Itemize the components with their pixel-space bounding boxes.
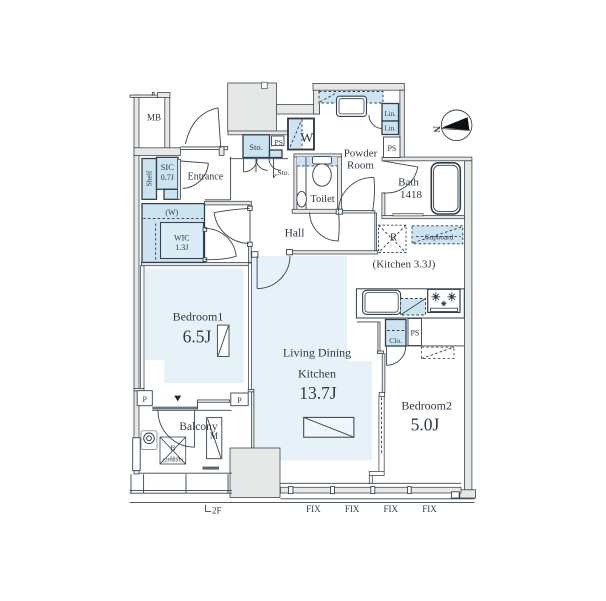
svg-text:FIX: FIX — [384, 504, 399, 514]
svg-text:(W): (W) — [165, 208, 178, 217]
svg-text:Lin.: Lin. — [384, 110, 396, 118]
svg-text:Sto.: Sto. — [278, 168, 290, 177]
svg-text:Bath: Bath — [398, 177, 419, 189]
svg-text:Entrance: Entrance — [188, 172, 224, 183]
svg-text:13.7J: 13.7J — [299, 383, 337, 403]
svg-text:Clo.: Clo. — [389, 336, 402, 345]
svg-text:Kitchen: Kitchen — [298, 367, 336, 381]
svg-text:B: B — [170, 444, 175, 453]
svg-text:PS: PS — [387, 144, 396, 153]
svg-text:N: N — [432, 126, 442, 133]
svg-text:M: M — [210, 431, 218, 441]
svg-text:Toilet: Toilet — [310, 194, 334, 205]
svg-text:PS: PS — [410, 329, 419, 338]
svg-text:MB: MB — [147, 113, 161, 123]
svg-text:6.5J: 6.5J — [183, 327, 212, 347]
svg-text:FIX: FIX — [422, 504, 437, 514]
svg-text:WIC: WIC — [174, 234, 190, 243]
svg-text:Living Dining: Living Dining — [283, 345, 351, 359]
svg-text:SIC: SIC — [161, 162, 175, 172]
svg-text:Powder: Powder — [344, 148, 378, 160]
svg-text:Lin.: Lin. — [384, 125, 396, 133]
svg-text:FIX: FIX — [306, 504, 321, 514]
svg-text:Shelf: Shelf — [145, 170, 154, 186]
svg-text:0.7J: 0.7J — [161, 173, 174, 182]
svg-text:2F: 2F — [212, 506, 222, 516]
svg-text:(2F除外): (2F除外) — [163, 456, 184, 464]
svg-text:1418: 1418 — [400, 189, 423, 201]
svg-text:W: W — [300, 131, 314, 146]
svg-text:5.0J: 5.0J — [411, 415, 440, 435]
svg-text:Cupboard: Cupboard — [425, 233, 454, 241]
svg-text:Bedroom1: Bedroom1 — [173, 310, 224, 324]
svg-text:Bedroom2: Bedroom2 — [401, 398, 452, 412]
svg-text:R: R — [390, 232, 398, 244]
svg-text:P: P — [237, 396, 242, 405]
svg-text:PS: PS — [275, 138, 283, 147]
svg-text:(Kitchen 3.3J): (Kitchen 3.3J) — [373, 259, 436, 271]
svg-text:Hall: Hall — [285, 228, 305, 240]
svg-text:1.3J: 1.3J — [175, 243, 188, 252]
svg-text:Room: Room — [347, 160, 374, 172]
svg-text:FIX: FIX — [345, 504, 360, 514]
svg-text:P: P — [142, 395, 147, 404]
svg-text:Sto.: Sto. — [249, 142, 262, 152]
